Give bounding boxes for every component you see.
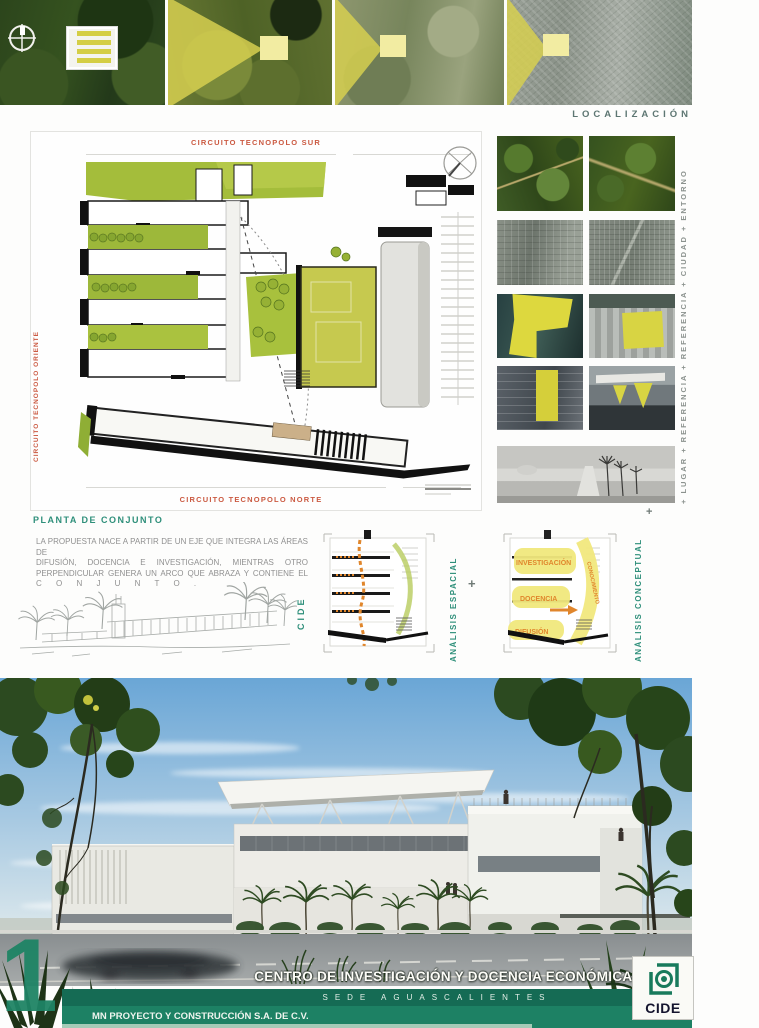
locator-aerial-zoom1 — [168, 0, 332, 105]
localizacion-label: LOCALIZACIÓN — [420, 109, 692, 120]
photo-referencia-1 — [497, 294, 583, 358]
site-marker — [260, 36, 288, 60]
cide-logo: CIDE — [632, 956, 694, 1020]
zoom-triangle-icon — [168, 0, 263, 105]
intro-line: LA PROPUESTA NACE A PARTIR DE UN EJE QUE… — [36, 537, 308, 558]
zone-label-docencia: DOCENCIA — [520, 596, 557, 603]
street-label-bottom: CIRCUITO TECNOPOLO NORTE — [121, 495, 381, 504]
cide-logo-text: CIDE — [633, 1000, 693, 1016]
conceptual-analysis-label: ANÁLISIS CONCEPTUAL — [634, 522, 643, 662]
road-palms-graphic — [497, 446, 675, 503]
compass-icon — [6, 22, 38, 54]
photo-referencia-3 — [497, 366, 583, 430]
intro-line: PERPENDICULAR GENERA UN ARCO QUE ABRAZA … — [36, 569, 308, 580]
intro-line: DIFUSIÓN, DOCENCIA E INVESTIGACIÓN, MIEN… — [36, 558, 308, 569]
locator-aerial-zoom2 — [335, 0, 504, 105]
spatial-analysis-label: ANÁLISIS ESPACIAL — [449, 524, 458, 662]
plan-drawing — [76, 157, 476, 487]
car-silhouette — [62, 951, 238, 981]
site-marker — [543, 34, 569, 56]
locator-aerial-site — [0, 0, 165, 105]
concept-sketch — [12, 582, 297, 667]
cide-vertical-label: CIDE — [296, 558, 306, 630]
cide-logo-mark-icon — [645, 961, 681, 997]
photo-referencia-4 — [589, 366, 675, 430]
footer-accent-strip — [62, 1024, 532, 1028]
site-plan-inset — [66, 26, 118, 70]
spatial-analysis-diagram — [316, 522, 444, 662]
locator-aerial-zoom3 — [507, 0, 692, 105]
photo-entorno-1 — [497, 136, 583, 211]
sede-band: SEDE AGUASCALIENTES — [62, 989, 692, 1006]
site-marker — [380, 35, 406, 57]
zoom-triangle-icon — [507, 0, 547, 105]
project-title: CENTRO DE INVESTIGACIÓN Y DOCENCIA ECONÓ… — [252, 969, 644, 984]
presentation-board: LOCALIZACIÓN CIRCUITO TECNOPOLO SUR CIRC… — [0, 0, 759, 1028]
plus-separator: + — [646, 506, 652, 518]
photo-ciudad-1 — [497, 220, 583, 285]
photo-column-caption: + LUGAR + REFERENCIA + REFERENCIA + CIUD… — [679, 136, 688, 504]
plus-separator: + — [468, 576, 476, 591]
photo-lugar — [497, 446, 675, 503]
street-label-left: CIRCUITO TECNOPOLO ORIENTE — [33, 282, 40, 462]
site-plan-panel: CIRCUITO TECNOPOLO SUR CIRCUITO TECNOPOL… — [30, 131, 482, 511]
street-label-top: CIRCUITO TECNOPOLO SUR — [31, 138, 481, 147]
photo-ciudad-2 — [589, 220, 675, 285]
sheet-number: 1 — [0, 924, 72, 1028]
photo-referencia-2 — [589, 294, 675, 358]
zone-label-investigacion: INVESTIGACIÓN — [516, 558, 571, 567]
plan-caption: PLANTA DE CONJUNTO — [33, 515, 163, 525]
photo-entorno-2 — [589, 136, 675, 211]
conceptual-analysis-diagram: INVESTIGACIÓN DOCENCIA DIFUSIÓN CONOCIMI… — [498, 522, 628, 662]
zoom-triangle-icon — [335, 0, 382, 105]
